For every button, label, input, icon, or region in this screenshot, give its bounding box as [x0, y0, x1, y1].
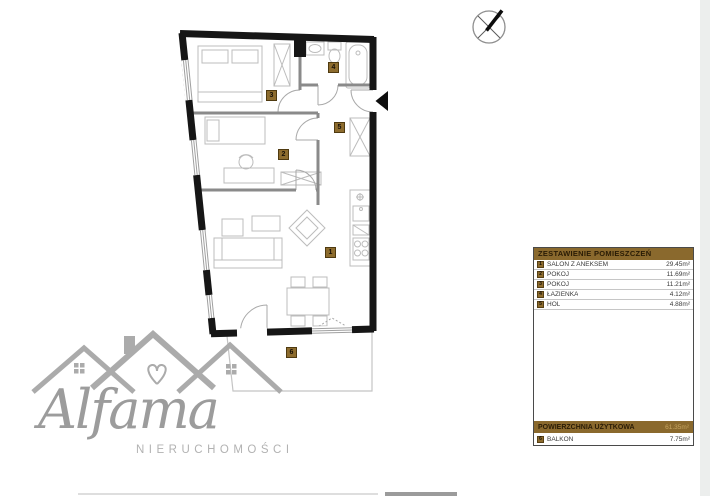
legend-row-pokoj-3: 3 POKÓJ 11.21m²	[534, 280, 693, 290]
page-edge-strip	[700, 0, 710, 496]
legend-label-5: HOL	[547, 301, 560, 308]
floor-plan-page: 1 2 3 4 5 6 ZESTAWIENIE POMIESZCZEŃ 1 SA…	[0, 0, 710, 496]
legend-area-3: 11.21m²	[667, 281, 690, 288]
legend-area-1: 29.45m²	[666, 261, 690, 268]
legend-row-lazienka: 4 ŁAZIENKA 4.12m²	[534, 290, 693, 300]
room-schedule-table: ZESTAWIENIE POMIESZCZEŃ 1 SALON Z ANEKSE…	[533, 247, 694, 446]
legend-area-5: 4.88m²	[670, 301, 690, 308]
legend-total-row: POWIERZCHNIA UŻYTKOWA 61.35m²	[534, 421, 693, 433]
legend-row-pokoj-2: 2 POKÓJ 11.69m²	[534, 270, 693, 280]
legend-label-2: POKÓJ	[547, 271, 569, 278]
legend-label-3: POKÓJ	[547, 281, 569, 288]
room-marker-balkon: 6	[286, 347, 297, 358]
legend-spacer	[534, 310, 693, 421]
legend-title: ZESTAWIENIE POMIESZCZEŃ	[534, 248, 693, 260]
legend-row-balkon: 6 BALKON 7.75m²	[534, 433, 693, 445]
legend-label-1: SALON Z ANEKSEM	[547, 261, 608, 268]
logo-brand-text: Alfama	[38, 383, 218, 437]
legend-area-4: 4.12m²	[670, 291, 690, 298]
logo-window-left	[74, 363, 85, 374]
legend-row-hol: 5 HOL 4.88m²	[534, 300, 693, 310]
room-marker-pokoj-3: 3	[266, 90, 277, 101]
shaft-block	[294, 37, 306, 57]
north-compass-icon	[473, 11, 505, 44]
truncated-footnote-stamp	[385, 492, 457, 496]
legend-area-6: 7.75m²	[670, 436, 690, 443]
logo-subtitle-text: NIERUCHOMOŚCI	[136, 444, 294, 456]
legend-num-1: 1	[537, 261, 544, 268]
legend-num-2: 2	[537, 271, 544, 278]
room-marker-salon: 1	[325, 247, 336, 258]
legend-label-6: BALKON	[547, 436, 573, 443]
room-marker-pokoj-2: 2	[278, 149, 289, 160]
legend-row-salon: 1 SALON Z ANEKSEM 29.45m²	[534, 260, 693, 270]
room-marker-hol: 5	[334, 122, 345, 133]
legend-total-label: POWIERZCHNIA UŻYTKOWA	[538, 424, 635, 431]
room-marker-lazienka: 4	[328, 62, 339, 73]
legend-total-area: 61.35m²	[665, 424, 689, 431]
legend-label-4: ŁAZIENKA	[547, 291, 578, 298]
legend-num-4: 4	[537, 291, 544, 298]
truncated-footnote	[78, 493, 378, 495]
legend-num-5: 5	[537, 301, 544, 308]
entrance-arrow-icon	[376, 91, 389, 111]
legend-num-6: 6	[537, 436, 544, 443]
legend-num-3: 3	[537, 281, 544, 288]
legend-area-2: 11.69m²	[667, 271, 690, 278]
